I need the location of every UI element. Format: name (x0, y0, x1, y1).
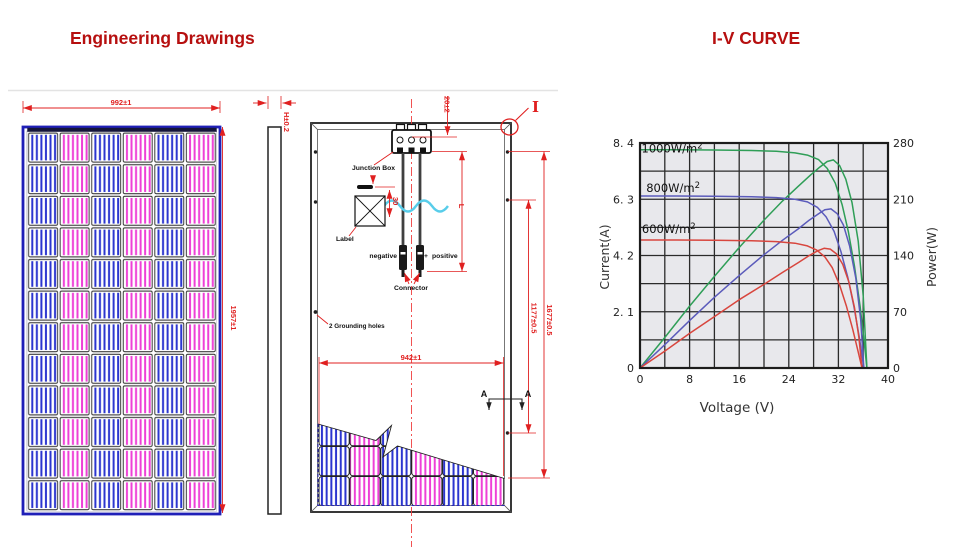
detail-i-text: I (532, 98, 539, 116)
grounding-holes-label: 2 Grounding holes (329, 323, 385, 330)
x-tick-label: 0 (637, 373, 644, 386)
series-label: 600W/m2 (642, 222, 696, 236)
x-axis-title: Voltage (V) (700, 400, 775, 416)
series-label: 800W/m2 (646, 181, 700, 195)
front-width-dim-text: 992±1 (111, 98, 132, 107)
dim-1677-text: 1677±0.5 (545, 304, 554, 335)
y-axis-left-title: Current(A) (597, 224, 612, 289)
cutaway-cell (350, 447, 380, 476)
connector-label: Connector (394, 285, 428, 292)
y-left-tick-label: 8. 4 (613, 137, 634, 150)
positive-label: positive (432, 253, 458, 260)
front-cell-column (27, 132, 59, 511)
front-cell-column (122, 132, 154, 511)
minus-sign: − (401, 253, 405, 260)
front-height-dim-text: 1957±1 (229, 306, 238, 331)
y-right-tick-label: 210 (893, 193, 914, 206)
cutaway-cell (474, 477, 504, 506)
x-tick-label: 8 (686, 373, 693, 386)
dim-20-text: 20±2 (443, 96, 452, 113)
junction-box (392, 125, 431, 154)
side-thickness-dim-text: H±0.2 (282, 112, 291, 132)
front-cell-column (185, 132, 217, 511)
y-left-tick-label: 4. 2 (613, 250, 634, 263)
dim-1177: 1177±0.5 (508, 200, 539, 433)
front-cell-column (90, 132, 122, 511)
connector-positive (416, 245, 424, 270)
y-right-tick-label: 280 (893, 137, 914, 150)
dim-1177-text: 1177±0.5 (530, 303, 539, 334)
cutaway-cell (319, 447, 349, 476)
dim-30-text: 30 (391, 197, 400, 205)
cutaway-cell (319, 477, 349, 506)
y-right-tick-label: 70 (893, 306, 907, 319)
y-left-tick-label: 2. 1 (613, 306, 634, 319)
cutaway-cell (412, 477, 442, 506)
y-left-tick-label: 6. 3 (613, 193, 634, 206)
cutaway-cell (350, 477, 380, 506)
section-a-left-text: A (481, 389, 488, 399)
engineering-drawing: 992±1 1957±1 H±0.2 (0, 88, 560, 552)
junction-box-label: Junction Box (352, 165, 395, 172)
front-width-dimension: 992±1 (23, 98, 220, 113)
x-tick-label: 16 (732, 373, 746, 386)
x-tick-label: 24 (782, 373, 796, 386)
iv-curve-title: I-V CURVE (712, 28, 800, 49)
plus-sign: + (424, 253, 428, 260)
y-right-tick-label: 0 (893, 362, 900, 375)
front-view: 992±1 1957±1 (23, 98, 238, 514)
front-cell-column (154, 132, 186, 511)
label-label: Label (336, 236, 354, 243)
iv-curve-chart: 1000W/m2800W/m2600W/m2081624324002. 14. … (585, 105, 980, 440)
section-a-right-text: A (525, 389, 532, 399)
side-profile (268, 127, 281, 514)
cutaway-cell (381, 477, 411, 506)
side-view: H±0.2 (253, 96, 296, 514)
cutaway-cell (443, 477, 473, 506)
negative-label: negative (369, 253, 397, 260)
x-tick-label: 32 (831, 373, 845, 386)
y-left-tick-label: 0 (627, 362, 634, 375)
label-bar (357, 185, 373, 189)
y-right-tick-label: 140 (893, 250, 914, 263)
front-cell-grid (27, 132, 216, 511)
front-height-dimension: 1957±1 (223, 127, 239, 513)
back-view: Junction Box 3 (311, 96, 554, 547)
dim-942-text: 942±1 (401, 353, 422, 362)
datasheet-page: Engineering Drawings I-V CURVE (0, 0, 980, 552)
y-axis-right-title: Power(W) (924, 227, 939, 287)
front-cell-column (59, 132, 91, 511)
dim-L-text: L (457, 204, 466, 209)
engineering-drawings-title: Engineering Drawings (70, 28, 255, 49)
front-top-strip (27, 128, 216, 132)
